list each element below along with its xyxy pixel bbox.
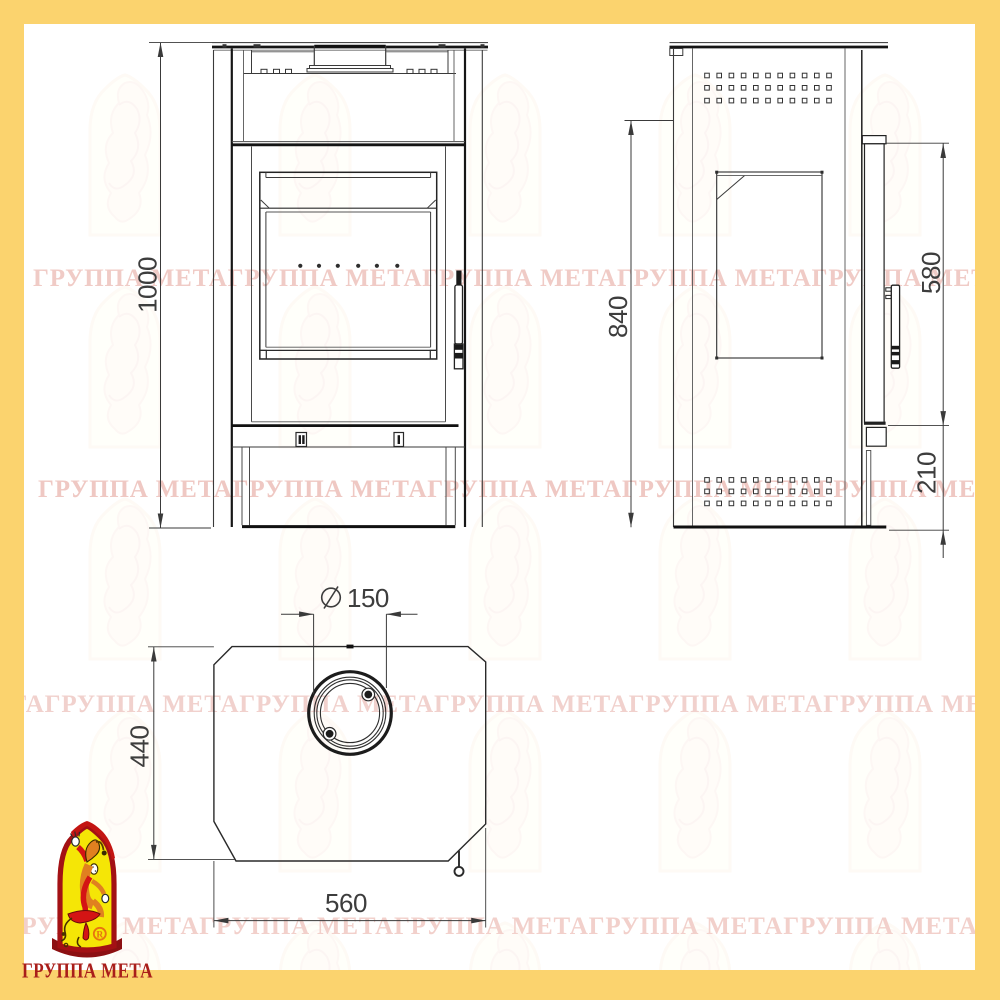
svg-text:ГРУППА МЕТАГРУППА МЕТАГРУППА М: ГРУППА МЕТАГРУППА МЕТАГРУППА МЕТАГРУППА … (33, 265, 1000, 292)
svg-text:580: 580 (916, 252, 946, 294)
svg-text:ГРУППА МЕТАГРУППА МЕТАГРУППА М: ГРУППА МЕТАГРУППА МЕТАГРУППА МЕТАГРУППА … (0, 691, 1000, 718)
svg-text:1000: 1000 (133, 257, 163, 313)
svg-text:150: 150 (347, 583, 389, 613)
svg-text:ГРУППА МЕТАГРУППА МЕТАГРУППА М: ГРУППА МЕТАГРУППА МЕТАГРУППА МЕТАГРУППА … (38, 476, 1000, 503)
svg-text:210: 210 (912, 452, 942, 494)
svg-text:440: 440 (125, 726, 155, 768)
svg-text:R: R (96, 931, 103, 941)
svg-text:ГРУППА МЕТА: ГРУППА МЕТА (22, 959, 153, 983)
svg-text:ГРУППА МЕТАГРУППА МЕТАГРУППА М: ГРУППА МЕТАГРУППА МЕТАГРУППА МЕТАГРУППА … (0, 913, 978, 940)
svg-text:560: 560 (325, 888, 367, 918)
svg-text:840: 840 (603, 296, 633, 338)
